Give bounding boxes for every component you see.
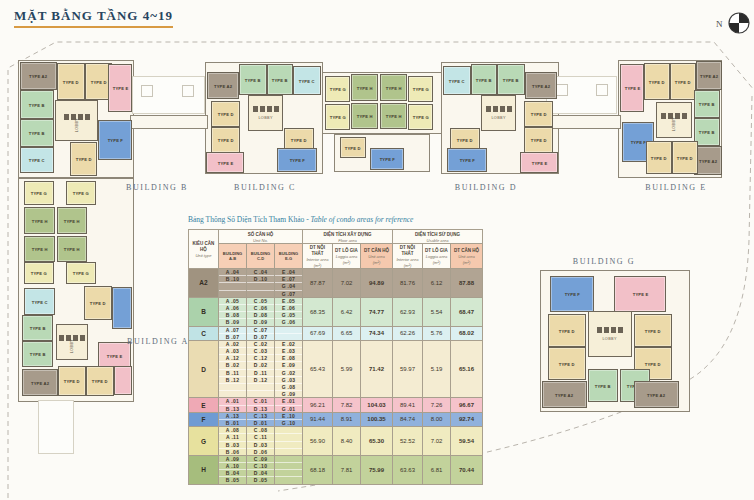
table-row: BA .05A .06B .08B .09C .05C .06D .08D .0…: [189, 297, 483, 326]
unit-type-label: TYPE H: [386, 114, 402, 119]
unit-block-type-e: [114, 366, 132, 395]
unit-type-cell: D: [189, 340, 219, 398]
building-footprint: [543, 115, 621, 129]
area-value: 7.02: [333, 269, 361, 298]
table-row: DA .02A .03A .12B .02B .11B .12 C .02C .…: [189, 340, 483, 398]
unit-number: G .09: [275, 391, 302, 397]
unit-number: E .10: [275, 413, 302, 420]
unit-block-type-b: TYPE B: [471, 64, 497, 95]
unit-type-label: TYPE G: [31, 271, 47, 276]
unit-block-type-a2: TYPE A2: [525, 72, 557, 99]
unit-number: D .10: [247, 276, 274, 283]
unit-number: [247, 283, 274, 290]
unit-number: B .12: [219, 377, 246, 384]
col-header-unit-area-2: DT CĂN HỘ Unit area (m²): [451, 244, 483, 269]
unit-numbers-cell: C .07D .07: [247, 326, 275, 340]
unit-number: [275, 434, 302, 441]
unit-block-type-a2: TYPE A2: [696, 61, 722, 90]
compass-n-label: N: [716, 19, 723, 29]
unit-number: D .03: [247, 442, 274, 449]
unit-number: C .09: [247, 456, 274, 463]
elevator-bank: [253, 106, 279, 112]
area-value: 5.99: [333, 340, 361, 398]
unit-number: B .09: [219, 319, 246, 325]
unit-numbers-cell: A .02A .03A .12B .02B .11B .12: [219, 340, 247, 398]
unit-block-type-h: TYPE H: [24, 207, 55, 234]
unit-type-label: TYPE D: [90, 301, 106, 306]
unit-block-type-d: TYPE D: [211, 127, 240, 153]
unit-number: A .12: [219, 355, 246, 362]
lobby-core: LOBBY: [55, 100, 98, 141]
unit-number: C .06: [247, 305, 274, 312]
area-value: 68.18: [303, 455, 333, 484]
unit-number: A .13: [219, 413, 246, 420]
unit-area-value: 65.16: [451, 340, 483, 398]
unit-number: [275, 477, 302, 483]
table-row: CA .07B .07C .07D .07 67.696.6574.3462.2…: [189, 326, 483, 340]
area-value: 52.52: [393, 427, 423, 456]
unit-type-label: TYPE D: [651, 155, 667, 160]
roof-opening: [141, 85, 153, 97]
area-value: 6.42: [333, 297, 361, 326]
unit-type-label: TYPE B: [503, 77, 519, 82]
unit-block-type-f: TYPE F: [447, 148, 487, 172]
unit-type-label: TYPE D: [63, 79, 79, 84]
area-value: 5.76: [423, 326, 451, 340]
lobby-core: LOBBY: [481, 95, 516, 131]
unit-numbers-cell: A .08A .11B .03B .06: [219, 427, 247, 456]
unit-number: [275, 449, 302, 455]
unit-type-label: TYPE D: [76, 157, 92, 162]
unit-number: G .03: [275, 377, 302, 384]
unit-block-type-b: TYPE B: [22, 341, 53, 367]
unit-block-type-a2: TYPE A2: [634, 381, 679, 408]
unit-number: [247, 384, 274, 391]
unit-area-value: 65.30: [361, 427, 393, 456]
unit-type-label: TYPE G: [73, 191, 89, 196]
unit-block-type-g: TYPE G: [408, 76, 433, 102]
unit-number: C .12: [247, 355, 274, 362]
unit-type-label: TYPE D: [345, 145, 361, 150]
unit-area-value: 100.35: [361, 412, 393, 426]
table-row: GA .08A .11B .03B .06C .08C .11D .03D .0…: [189, 427, 483, 456]
lobby-label: LOBBY: [491, 115, 505, 120]
unit-type-label: TYPE D: [291, 138, 307, 143]
unit-number: B .05: [219, 477, 246, 483]
unit-type-cell: E: [189, 398, 219, 412]
unit-block-type-h: TYPE H: [351, 103, 378, 129]
unit-block-type-d: TYPE D: [58, 366, 86, 396]
unit-numbers-cell: C .02C .03C .12D .02D .11D .12: [247, 340, 275, 398]
unit-area-value: 87.88: [451, 269, 483, 298]
table-row: HA .09A .10B .04B .05C .09C .10D .04D .0…: [189, 455, 483, 484]
unit-block-type-g: TYPE G: [66, 181, 96, 205]
unit-block-type-f: [112, 287, 132, 329]
unit-type-label: TYPE F: [630, 140, 645, 145]
unit-number: B .06: [219, 449, 246, 455]
unit-type-label: TYPE F: [107, 138, 122, 143]
unit-type-label: TYPE G: [412, 87, 428, 92]
col-header-loggia-2: DT LÔ GIA Loggia area (m²): [423, 244, 451, 269]
unit-number: D .05: [247, 477, 274, 483]
unit-number: [219, 391, 246, 397]
unit-type-label: TYPE G: [73, 271, 89, 276]
col-header-building-ab: BUILDING A-B: [219, 244, 247, 269]
compass-icon: N: [712, 5, 754, 41]
area-value: 6.12: [423, 269, 451, 298]
area-value: 59.97: [393, 340, 423, 398]
unit-type-label: TYPE F: [379, 157, 394, 162]
building-label: BUILDING C: [234, 183, 296, 192]
unit-number: E .01: [275, 398, 302, 405]
unit-numbers-cell: A .04B .10: [219, 269, 247, 298]
unit-number: B .03: [219, 442, 246, 449]
area-value: 91.44: [303, 412, 333, 426]
unit-number: E .04: [275, 269, 302, 276]
unit-number: C .01: [247, 398, 274, 405]
unit-block-type-a2: TYPE A2: [207, 72, 239, 99]
unit-type-label: TYPE D: [457, 138, 473, 143]
unit-number: A .07: [219, 327, 246, 334]
lobby-label: LOBBY: [74, 117, 79, 131]
unit-numbers-cell: A .05A .06B .08B .09: [219, 297, 247, 326]
unit-number: G .01: [275, 406, 302, 412]
unit-number: C .05: [247, 298, 274, 305]
unit-number: [247, 291, 274, 297]
table-title: Bảng Thông Số Diện Tích Tham Khảo - Tabl…: [188, 215, 413, 224]
unit-number: B .01: [219, 420, 246, 426]
unit-type-label: TYPE G: [412, 115, 428, 120]
unit-type-label: TYPE B: [30, 352, 46, 357]
unit-block-type-e: TYPE E: [614, 276, 666, 312]
area-value: 7.82: [333, 398, 361, 412]
building-label: BUILDING B: [126, 183, 188, 192]
unit-area-value: 74.77: [361, 297, 393, 326]
roof-opening: [556, 84, 568, 96]
unit-number: B .02: [219, 362, 246, 369]
unit-area-value: 71.42: [361, 340, 393, 398]
unit-numbers-cell: C .09C .10D .04D .05: [247, 455, 275, 484]
unit-block-type-c: TYPE C: [20, 147, 54, 173]
page-title: MẶT BẰNG TẦNG 4~19: [14, 8, 173, 28]
building-label: BUILDING D: [455, 183, 517, 192]
unit-type-label: TYPE A2: [532, 83, 550, 88]
unit-block-type-h: TYPE H: [380, 74, 407, 101]
unit-block-type-f: TYPE F: [370, 148, 404, 170]
roof-opening: [596, 84, 608, 96]
area-value: 7.26: [423, 398, 451, 412]
unit-type-cell: B: [189, 297, 219, 326]
area-value: 62.26: [393, 326, 423, 340]
unit-block-type-a2: TYPE A2: [20, 62, 57, 90]
unit-block-type-c: TYPE C: [443, 66, 471, 95]
unit-type-label: TYPE H: [386, 85, 402, 90]
unit-number: C .03: [247, 348, 274, 355]
unit-numbers-cell: E .04E .07G .04G .07: [275, 269, 303, 298]
col-header-building-eg: BUILDING E-G: [275, 244, 303, 269]
area-value: 5.54: [423, 297, 451, 326]
unit-number: A .06: [219, 305, 246, 312]
unit-number: D .08: [247, 312, 274, 319]
unit-number: B .08: [219, 312, 246, 319]
unit-numbers-cell: E .01G .01: [275, 398, 303, 412]
building-footprint: [130, 115, 208, 129]
unit-block-type-f: TYPE F: [277, 148, 317, 172]
unit-numbers-cell: E .05E .06G .05G .06: [275, 297, 303, 326]
col-header-unit-area-1: DT CĂN HỘ Unit area (m²): [361, 244, 393, 269]
unit-type-label: TYPE B: [699, 102, 715, 107]
col-header-floor-area: DIỆN TÍCH XÂY DỰNG Floor area: [303, 230, 393, 244]
area-value: 56.90: [303, 427, 333, 456]
unit-type-label: TYPE D: [92, 379, 108, 384]
unit-type-label: TYPE A2: [214, 83, 232, 88]
table-row: EA .01B .13C .01D .13E .01G .0196.217.82…: [189, 398, 483, 412]
area-value: 62.93: [393, 297, 423, 326]
unit-number: [275, 327, 302, 334]
unit-type-label: TYPE D: [649, 79, 665, 84]
area-value: 87.87: [303, 269, 333, 298]
unit-block-type-b: TYPE B: [267, 64, 293, 95]
unit-block-type-h: TYPE H: [57, 236, 87, 262]
unit-number: E .09: [275, 362, 302, 369]
col-header-unit-no: SỐ CĂN HỘ Unit No.: [219, 230, 303, 244]
unit-number: B .10: [219, 276, 246, 283]
table-title-en: - Table of condo areas for reference: [304, 215, 413, 224]
unit-number: E .06: [275, 305, 302, 312]
unit-type-label: TYPE C: [32, 299, 48, 304]
unit-number: D .11: [247, 370, 274, 377]
unit-type-label: TYPE F: [289, 158, 304, 163]
lobby-core: LOBBY: [56, 324, 88, 360]
building-label: BUILDING G: [573, 257, 635, 266]
unit-block-type-c: TYPE C: [24, 288, 55, 315]
unit-type-label: TYPE A2: [700, 73, 718, 78]
unit-area-value: 59.54: [451, 427, 483, 456]
unit-number: D .01: [247, 420, 274, 426]
unit-number: C .08: [247, 427, 274, 434]
unit-area-value: 104.03: [361, 398, 393, 412]
unit-number: D .02: [247, 362, 274, 369]
unit-number: [275, 456, 302, 463]
unit-number: D .12: [247, 377, 274, 384]
unit-block-type-d: TYPE D: [672, 141, 698, 174]
unit-number: E .07: [275, 276, 302, 283]
area-value: 68.35: [303, 297, 333, 326]
unit-type-label: TYPE H: [357, 114, 373, 119]
unit-number: A .01: [219, 398, 246, 405]
unit-block-type-b: TYPE B: [20, 119, 54, 147]
unit-number: A .09: [219, 456, 246, 463]
unit-block-type-d: TYPE D: [548, 347, 586, 380]
unit-type-label: TYPE B: [29, 131, 45, 136]
unit-number: A .03: [219, 348, 246, 355]
unit-type-label: TYPE F: [564, 292, 579, 297]
unit-type-label: TYPE D: [559, 328, 575, 333]
unit-number: C .11: [247, 434, 274, 441]
unit-numbers-cell: C .05C .06D .08D .09: [247, 297, 275, 326]
unit-area-value: 68.47: [451, 297, 483, 326]
unit-number: A .04: [219, 269, 246, 276]
unit-type-label: TYPE B: [699, 130, 715, 135]
unit-block-type-f: TYPE F: [550, 276, 594, 312]
unit-type-label: TYPE A2: [31, 380, 49, 385]
unit-type-label: TYPE D: [64, 379, 80, 384]
unit-type-label: TYPE H: [64, 218, 80, 223]
roof-opening: [182, 85, 194, 97]
unit-block-type-g: TYPE G: [66, 262, 96, 284]
unit-type-label: TYPE D: [531, 138, 547, 143]
unit-number: [219, 384, 246, 391]
lobby-core: LOBBY: [656, 102, 692, 138]
unit-numbers-cell: E .10G .10: [275, 412, 303, 426]
lobby-core: LOBBY: [588, 311, 632, 357]
unit-block-type-d: TYPE D: [644, 63, 670, 100]
unit-number: C .04: [247, 269, 274, 276]
area-value: 81.76: [393, 269, 423, 298]
elevator-bank: [486, 106, 512, 112]
unit-type-label: TYPE D: [531, 112, 547, 117]
unit-block-type-h: TYPE H: [380, 103, 407, 129]
unit-block-type-a2: TYPE A2: [542, 381, 587, 408]
unit-block-type-e: TYPE E: [108, 64, 132, 112]
unit-number: B .07: [219, 334, 246, 340]
area-value: 7.02: [423, 427, 451, 456]
unit-number: [247, 391, 274, 397]
unit-number: E .08: [275, 355, 302, 362]
unit-numbers-cell: A .07B .07: [219, 326, 247, 340]
unit-block-type-h: TYPE H: [24, 236, 55, 262]
unit-numbers-cell: A .13B .01: [219, 412, 247, 426]
unit-block-type-b: TYPE B: [22, 315, 53, 341]
unit-number: G .02: [275, 370, 302, 377]
unit-number: C .07: [247, 327, 274, 334]
unit-block-type-d: TYPE D: [57, 63, 85, 100]
unit-block-type-b: TYPE B: [497, 64, 525, 95]
building-label: BUILDING E: [645, 183, 707, 192]
area-value: 67.69: [303, 326, 333, 340]
unit-block-type-b: TYPE B: [20, 90, 54, 119]
col-header-usable-area: DIỆN TÍCH SỬ DỤNG Usable area: [393, 230, 483, 244]
unit-type-label: TYPE E: [112, 86, 128, 91]
unit-numbers-cell: C .08C .11D .03D .06: [247, 427, 275, 456]
unit-type-label: TYPE H: [357, 85, 373, 90]
area-value: 89.41: [393, 398, 423, 412]
unit-block-type-f: TYPE F: [98, 120, 132, 160]
unit-number: [275, 463, 302, 470]
unit-number: C .13: [247, 413, 274, 420]
unit-number: G .08: [275, 384, 302, 391]
col-header-building-cd: BUILDING C-D: [247, 244, 275, 269]
unit-block-type-d: TYPE D: [86, 366, 114, 396]
unit-type-label: TYPE A2: [555, 392, 573, 397]
unit-number: E .03: [275, 348, 302, 355]
lobby-label: LOBBY: [672, 117, 677, 131]
unit-number: [275, 442, 302, 449]
area-value: 6.81: [423, 455, 451, 484]
unit-block-type-d: TYPE D: [211, 101, 240, 127]
unit-number: G .04: [275, 283, 302, 290]
unit-numbers-cell: [275, 455, 303, 484]
unit-area-value: 74.34: [361, 326, 393, 340]
unit-block-type-g: TYPE G: [325, 104, 350, 130]
area-value: 96.21: [303, 398, 333, 412]
unit-block-type-d: TYPE D: [524, 101, 553, 127]
unit-block-type-g: TYPE G: [24, 181, 54, 205]
unit-number: D .04: [247, 470, 274, 477]
table-title-vn: Bảng Thông Số Diện Tích Tham Khảo: [188, 215, 304, 224]
unit-type-label: TYPE H: [32, 247, 48, 252]
unit-block-type-g: TYPE G: [408, 104, 433, 130]
unit-type-label: TYPE D: [218, 138, 234, 143]
area-value: 7.81: [333, 455, 361, 484]
unit-number: G .05: [275, 312, 302, 319]
lobby-label: LOBBY: [258, 115, 272, 120]
unit-block-type-d: TYPE D: [524, 127, 553, 153]
unit-block-type-d: TYPE D: [70, 142, 97, 176]
area-value: 84.74: [393, 412, 423, 426]
courtyard: [38, 400, 74, 454]
unit-number: E .05: [275, 298, 302, 305]
unit-number: [275, 334, 302, 340]
col-header-interior-2: DT NỘI THẤT Interior area (m²): [393, 244, 423, 269]
col-header-loggia-1: DT LÔ GIA Loggia area (m²): [333, 244, 361, 269]
unit-block-type-d: TYPE D: [548, 314, 586, 347]
unit-block-type-g: TYPE G: [325, 76, 350, 102]
floor-plan-page: MẶT BẰNG TẦNG 4~19 N TYPE A2TYPE DTYPE D…: [0, 0, 754, 500]
unit-area-value: 75.99: [361, 455, 393, 484]
unit-type-cell: H: [189, 455, 219, 484]
unit-type-label: TYPE E: [632, 292, 648, 297]
unit-numbers-cell: [275, 326, 303, 340]
unit-type-cell: C: [189, 326, 219, 340]
unit-number: B .11: [219, 370, 246, 377]
unit-type-label: TYPE B: [595, 383, 611, 388]
unit-type-label: TYPE A2: [699, 158, 717, 163]
area-value: 8.00: [423, 412, 451, 426]
elevator-bank: [597, 327, 623, 333]
unit-number: A .05: [219, 298, 246, 305]
condo-area-table: KIỂU CĂN HỘ Unit type SỐ CĂN HỘ Unit No.…: [188, 229, 483, 485]
unit-numbers-cell: [275, 427, 303, 456]
unit-block-type-b: TYPE B: [694, 90, 720, 118]
unit-type-label: TYPE C: [299, 78, 315, 83]
unit-numbers-cell: C .01D .13: [247, 398, 275, 412]
unit-type-label: TYPE E: [217, 160, 233, 165]
unit-area-value: 68.02: [451, 326, 483, 340]
unit-block-type-a2: TYPE A2: [694, 146, 722, 175]
unit-type-label: TYPE E: [531, 160, 547, 165]
unit-block-type-g: TYPE G: [24, 262, 54, 284]
unit-block-type-d: TYPE D: [646, 141, 672, 174]
unit-number: B .04: [219, 470, 246, 477]
unit-area-value: 92.74: [451, 412, 483, 426]
unit-numbers-cell: C .13D .01: [247, 412, 275, 426]
unit-type-label: TYPE D: [645, 328, 661, 333]
unit-type-label: TYPE G: [31, 191, 47, 196]
unit-type-label: TYPE F: [459, 158, 474, 163]
unit-type-label: TYPE B: [476, 77, 492, 82]
unit-type-label: TYPE H: [32, 218, 48, 223]
unit-block-type-e: TYPE E: [520, 152, 558, 173]
unit-number: A .08: [219, 427, 246, 434]
unit-block-type-h: TYPE H: [351, 74, 378, 101]
area-value: 8.40: [333, 427, 361, 456]
unit-block-type-a2: TYPE A2: [22, 369, 58, 396]
unit-number: D .07: [247, 334, 274, 340]
unit-area-value: 96.67: [451, 398, 483, 412]
unit-number: E .02: [275, 341, 302, 348]
area-value: 63.63: [393, 455, 423, 484]
